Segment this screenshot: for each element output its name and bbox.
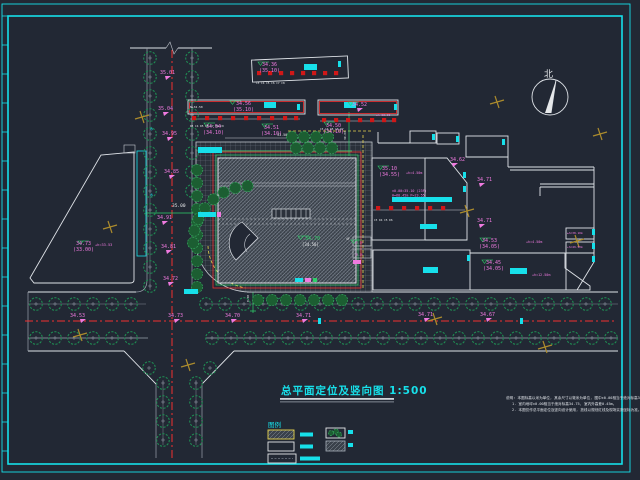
elevation-label: ±h=38.10m bbox=[567, 231, 583, 235]
column-square bbox=[370, 118, 374, 122]
grade-arrow-marker bbox=[452, 163, 458, 167]
column-square bbox=[392, 118, 396, 122]
column-square bbox=[346, 118, 350, 122]
shrub bbox=[242, 180, 253, 191]
elevation-label: 38.10 bbox=[355, 253, 363, 257]
cyan-tick bbox=[297, 104, 300, 110]
elevation-label: N+34.50 bbox=[190, 105, 203, 109]
cad-site-plan: 北 35.0135.0434.9534.8535.0034.9134.8134.… bbox=[0, 0, 640, 480]
shrub bbox=[298, 131, 309, 142]
cyan-tick bbox=[463, 186, 466, 192]
elevation-label: 35.04 bbox=[158, 106, 173, 112]
elevation-label: +h=12.50m bbox=[532, 273, 550, 277]
column-square bbox=[283, 116, 287, 120]
elevation-label: 34.91 bbox=[157, 215, 172, 221]
column-square bbox=[358, 118, 362, 122]
note-line: 1. 室内地坪±0.00相当于绝对标高34.75, 室内外高差0.45m。 bbox=[512, 401, 616, 406]
column-square bbox=[323, 71, 327, 75]
column-square bbox=[244, 116, 248, 120]
elevation-label: +h=33.53 bbox=[95, 243, 112, 247]
cyan-tick bbox=[456, 136, 459, 142]
north-label: 北 bbox=[544, 69, 553, 80]
elevation-label: 34.71 bbox=[477, 218, 492, 224]
column-square bbox=[376, 206, 380, 210]
elevation-label: (35.10) bbox=[259, 68, 280, 74]
elevation-label: 水 bbox=[150, 126, 154, 131]
magenta-tick bbox=[217, 212, 221, 217]
elevation-label: (35.10) bbox=[233, 107, 254, 113]
elevation-label: ±0.00=35.10 (23F) bbox=[392, 189, 427, 193]
column-square bbox=[301, 71, 305, 75]
shrub bbox=[286, 131, 297, 142]
elevation-label: (33.00) bbox=[73, 247, 94, 253]
cyan-tick bbox=[592, 256, 595, 262]
elevation-label: [34.50] bbox=[302, 242, 319, 247]
elevation-label: 34.72 bbox=[163, 276, 178, 282]
drawing-title: 总平面定位及竖向图 1:500 bbox=[281, 384, 428, 397]
grade-arrow-marker bbox=[165, 76, 171, 80]
elevation-label: D3 C4 D5 C6 C7 D8 C9 bbox=[190, 124, 224, 128]
grade-arrow-marker bbox=[302, 319, 308, 323]
legend-swatch-paving bbox=[326, 441, 345, 451]
elevation-label: 34.67 bbox=[480, 312, 495, 318]
label-bar bbox=[510, 268, 527, 274]
shrub bbox=[189, 225, 200, 236]
shrub bbox=[326, 142, 337, 153]
elevation-label: 34.81 bbox=[161, 244, 176, 250]
elevation-label: 34.71 bbox=[418, 312, 433, 318]
column-square bbox=[428, 206, 432, 210]
cyan-tick bbox=[394, 104, 397, 110]
shrub bbox=[191, 268, 202, 279]
note-line: 说明: 本图标高以米为单位, 其余尺寸以毫米为单位, 图中±0.00相当于绝对标… bbox=[506, 395, 640, 400]
shrub bbox=[302, 142, 313, 153]
shrub bbox=[308, 294, 319, 305]
column-square bbox=[294, 116, 298, 120]
shrub bbox=[218, 187, 229, 198]
elevation-label: 34.53 bbox=[70, 313, 85, 319]
elevation-label: 35.01 bbox=[160, 70, 175, 76]
column-square bbox=[270, 116, 274, 120]
note-line: 2. 本图仅作总平面定位及竖向设计使用, 放线以规划红线及现场实测坐标为准。 bbox=[512, 407, 640, 412]
elevation-label: (34.05) bbox=[479, 244, 500, 250]
label-bar bbox=[198, 212, 216, 217]
adjacent-lot bbox=[30, 145, 146, 283]
grade-arrow-marker bbox=[479, 183, 485, 187]
survey-cross bbox=[593, 128, 607, 140]
drawing-title-block: 总平面定位及竖向图 1:500 bbox=[280, 384, 428, 402]
survey-cross bbox=[103, 221, 117, 233]
shrub bbox=[322, 294, 333, 305]
column-square bbox=[257, 116, 261, 120]
shrub bbox=[187, 237, 198, 248]
column-square bbox=[441, 206, 445, 210]
column-square bbox=[389, 206, 393, 210]
legend-swatch-proposed bbox=[268, 430, 294, 439]
cyan-tick bbox=[467, 255, 470, 261]
elevation-label: 31.50 bbox=[277, 133, 287, 137]
elevation-label: C3 C4 D5 C6 D7 bbox=[320, 127, 344, 131]
grade-arrow-marker bbox=[479, 224, 485, 228]
column-square bbox=[322, 118, 326, 122]
column-square bbox=[415, 206, 419, 210]
elevation-label: H=68.45m P=23.55 bbox=[392, 194, 425, 198]
label-bar bbox=[392, 197, 452, 202]
column-square bbox=[312, 71, 316, 75]
elevation-label: +h=4.50m bbox=[526, 240, 542, 244]
elevation-label: +h=4.50m bbox=[406, 171, 422, 175]
shrub bbox=[266, 294, 277, 305]
column-square bbox=[402, 206, 406, 210]
elevation-label: 水 bbox=[150, 192, 154, 197]
shrub bbox=[208, 194, 219, 205]
cyan-tick bbox=[592, 229, 595, 235]
elevation-label: 34.71 bbox=[296, 313, 311, 319]
cyan-tick bbox=[592, 243, 595, 249]
elevation-label: 34.52 bbox=[352, 102, 367, 108]
shrub bbox=[230, 182, 241, 193]
elevation-label: (34.10) bbox=[203, 130, 224, 136]
north-arrow: 北 bbox=[532, 69, 568, 115]
magenta-tick bbox=[305, 278, 311, 282]
shrub bbox=[290, 142, 301, 153]
legend: 图例 bbox=[268, 420, 353, 463]
cyan-tick bbox=[318, 318, 321, 324]
elevation-label: 34.95 bbox=[162, 131, 177, 137]
general-notes: 说明: 本图标高以米为单位, 其余尺寸以毫米为单位, 图中±0.00相当于绝对标… bbox=[506, 395, 640, 412]
column-square bbox=[218, 116, 222, 120]
shrub bbox=[191, 177, 202, 188]
label-bar bbox=[295, 278, 303, 282]
grade-arrow-marker bbox=[357, 108, 363, 112]
elevation-label: ±h=38.20 bbox=[376, 113, 391, 117]
elevation-label: 35.00 bbox=[172, 203, 186, 209]
elevation-label: 35.10 bbox=[355, 241, 363, 245]
legend-swatch-existing bbox=[268, 442, 294, 451]
label-bar bbox=[264, 102, 276, 108]
grade-arrow-marker bbox=[167, 137, 173, 141]
shrub bbox=[280, 294, 291, 305]
legend-header: 图例 bbox=[268, 420, 281, 429]
grade-arrow-marker bbox=[163, 112, 169, 116]
cyan-tick bbox=[338, 61, 341, 67]
cyan-tick bbox=[463, 172, 466, 178]
label-bar bbox=[304, 64, 317, 70]
elevation-label: C3 D4 C5 D6 bbox=[374, 218, 393, 222]
elevation-label: 34.85 bbox=[164, 169, 179, 175]
frame-spine-ticks bbox=[2, 16, 8, 451]
cyan-tick bbox=[520, 318, 523, 324]
elevation-label: 34.73 bbox=[168, 313, 183, 319]
cyan-tick bbox=[502, 139, 505, 145]
shrub bbox=[252, 294, 263, 305]
elevation-label: C3 C4 C5 C6 C7 C8 bbox=[256, 81, 285, 85]
magenta-tick bbox=[353, 260, 361, 264]
elevation-label: 34.62 bbox=[450, 157, 465, 163]
elevation-label: 4F bbox=[346, 237, 350, 241]
column-square bbox=[382, 118, 386, 122]
column-square bbox=[334, 118, 338, 122]
elevation-label: +h=49.50m bbox=[567, 245, 583, 249]
label-bar bbox=[423, 267, 438, 273]
shrub bbox=[314, 142, 325, 153]
label-bar bbox=[198, 147, 222, 153]
grade-arrow-marker bbox=[168, 282, 174, 286]
column-square bbox=[231, 116, 235, 120]
street-tree bbox=[204, 362, 217, 375]
existing-buildings-top bbox=[188, 56, 398, 121]
elevation-label: (34.55) bbox=[379, 172, 400, 178]
building-stairs bbox=[272, 209, 310, 218]
street-tree bbox=[143, 362, 156, 375]
column-square bbox=[290, 71, 294, 75]
label-bar bbox=[420, 224, 437, 229]
elevation-label: (34.05) bbox=[483, 266, 504, 272]
shrub bbox=[310, 131, 321, 142]
grade-arrow-marker bbox=[174, 319, 180, 323]
column-square bbox=[334, 71, 338, 75]
shrub bbox=[336, 294, 347, 305]
shrub bbox=[294, 294, 305, 305]
label-bar bbox=[184, 289, 198, 294]
elevation-label: 34.71 bbox=[477, 177, 492, 183]
column-square bbox=[192, 116, 196, 120]
grade-arrow-marker bbox=[162, 221, 168, 225]
shrub bbox=[191, 190, 202, 201]
column-square bbox=[205, 116, 209, 120]
elevation-label: 8.00 bbox=[246, 295, 250, 302]
survey-cross bbox=[181, 359, 195, 371]
shrub bbox=[191, 255, 202, 266]
green-tick bbox=[313, 278, 317, 282]
elevation-label: 39.60 bbox=[343, 131, 347, 140]
cad-canvas: 北 35.0135.0434.9534.8535.0034.9134.8134.… bbox=[0, 0, 640, 480]
elevation-label: 34.70 bbox=[225, 313, 240, 319]
shrub bbox=[191, 164, 202, 175]
grade-arrow-marker bbox=[166, 250, 172, 254]
survey-cross bbox=[490, 96, 504, 108]
cyan-tick bbox=[432, 134, 435, 140]
